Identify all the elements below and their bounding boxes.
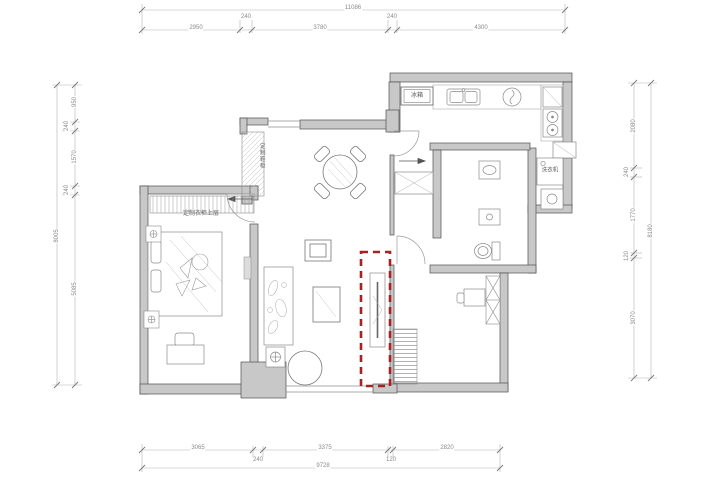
dining-chair [349,182,367,200]
hallway-cabinet [395,172,433,194]
kitchen-sink [447,89,480,105]
pillow [151,241,161,263]
utility-appliance [541,189,563,209]
dim-bottom-seg: 2820 [439,445,454,451]
bedroom1-chair [175,333,194,346]
dim-bottom-seg: 3375 [317,445,332,451]
round-pouf [288,351,322,385]
washing-machine-label: 洗衣机 [542,168,559,174]
dim-bottom-seg: 3065 [190,445,205,451]
fridge-label: 冰箱 [411,93,423,99]
pillow [151,270,161,292]
bathroom-vanity [479,161,500,179]
dim-right-seg: 3070 [631,310,637,325]
floor-plan-canvas: 11086 2950 240 3780 240 4300 3065 240 33… [0,0,714,478]
dim-top-total: 11086 [344,5,362,11]
dim-top-seg: 4300 [473,25,488,31]
dim-bottom-seg: 120 [385,457,397,463]
bedroom1-nightstand-top [146,226,161,242]
bedroom2-door [397,236,425,264]
kitchen-door [394,131,419,156]
dim-right-total: 8180 [648,223,654,238]
bedroom1-nightstand-bottom [144,311,159,328]
dining-chair [313,182,331,200]
dim-right-seg: 240 [624,166,630,178]
shoe-cabinet-label: 定制鞋柜 [258,143,264,169]
dim-left-seg: 950 [72,96,78,108]
tv-stand [370,273,385,347]
toilet [475,242,501,260]
stove [543,109,562,137]
bedroom2-desk [457,289,485,306]
bedroom2-wardrobe [486,276,500,324]
bedroom1-desk [167,333,204,364]
sofa [264,267,293,345]
bedroom2-bed [393,329,417,384]
coffee-table [313,287,340,322]
bedroom1-tv [244,257,251,279]
bedroom1-bed [148,232,222,316]
dim-top-seg: 2950 [188,25,203,31]
floor-plan-drawing [0,0,714,478]
wardrobe-upper-label: 定制衣柜上层 [183,211,219,217]
dim-right-seg: 120 [624,250,630,262]
dim-left-seg: 240 [64,120,70,132]
living-armchair [305,240,331,261]
dim-right-seg: 2080 [631,118,637,133]
dim-left-seg: 1570 [72,149,78,164]
dim-left-seg: 240 [64,184,70,196]
bathroom-cabinet [479,209,500,225]
dim-bottom-total: 9728 [315,463,330,469]
dim-top-seg: 3780 [312,25,327,31]
dim-top-seg: 240 [240,14,252,20]
kitchen-corner-cabinet [543,87,562,107]
dim-right-seg: 1770 [631,207,637,222]
side-table [266,347,285,367]
dim-left-total: 8005 [54,228,60,243]
dining-table [313,145,367,200]
kitchen-fan-symbol [503,88,521,106]
dim-left-seg: 5085 [72,281,78,296]
dim-top-seg: 240 [386,14,398,20]
dim-bottom-seg: 240 [252,457,264,463]
water-heater-box [553,142,576,158]
